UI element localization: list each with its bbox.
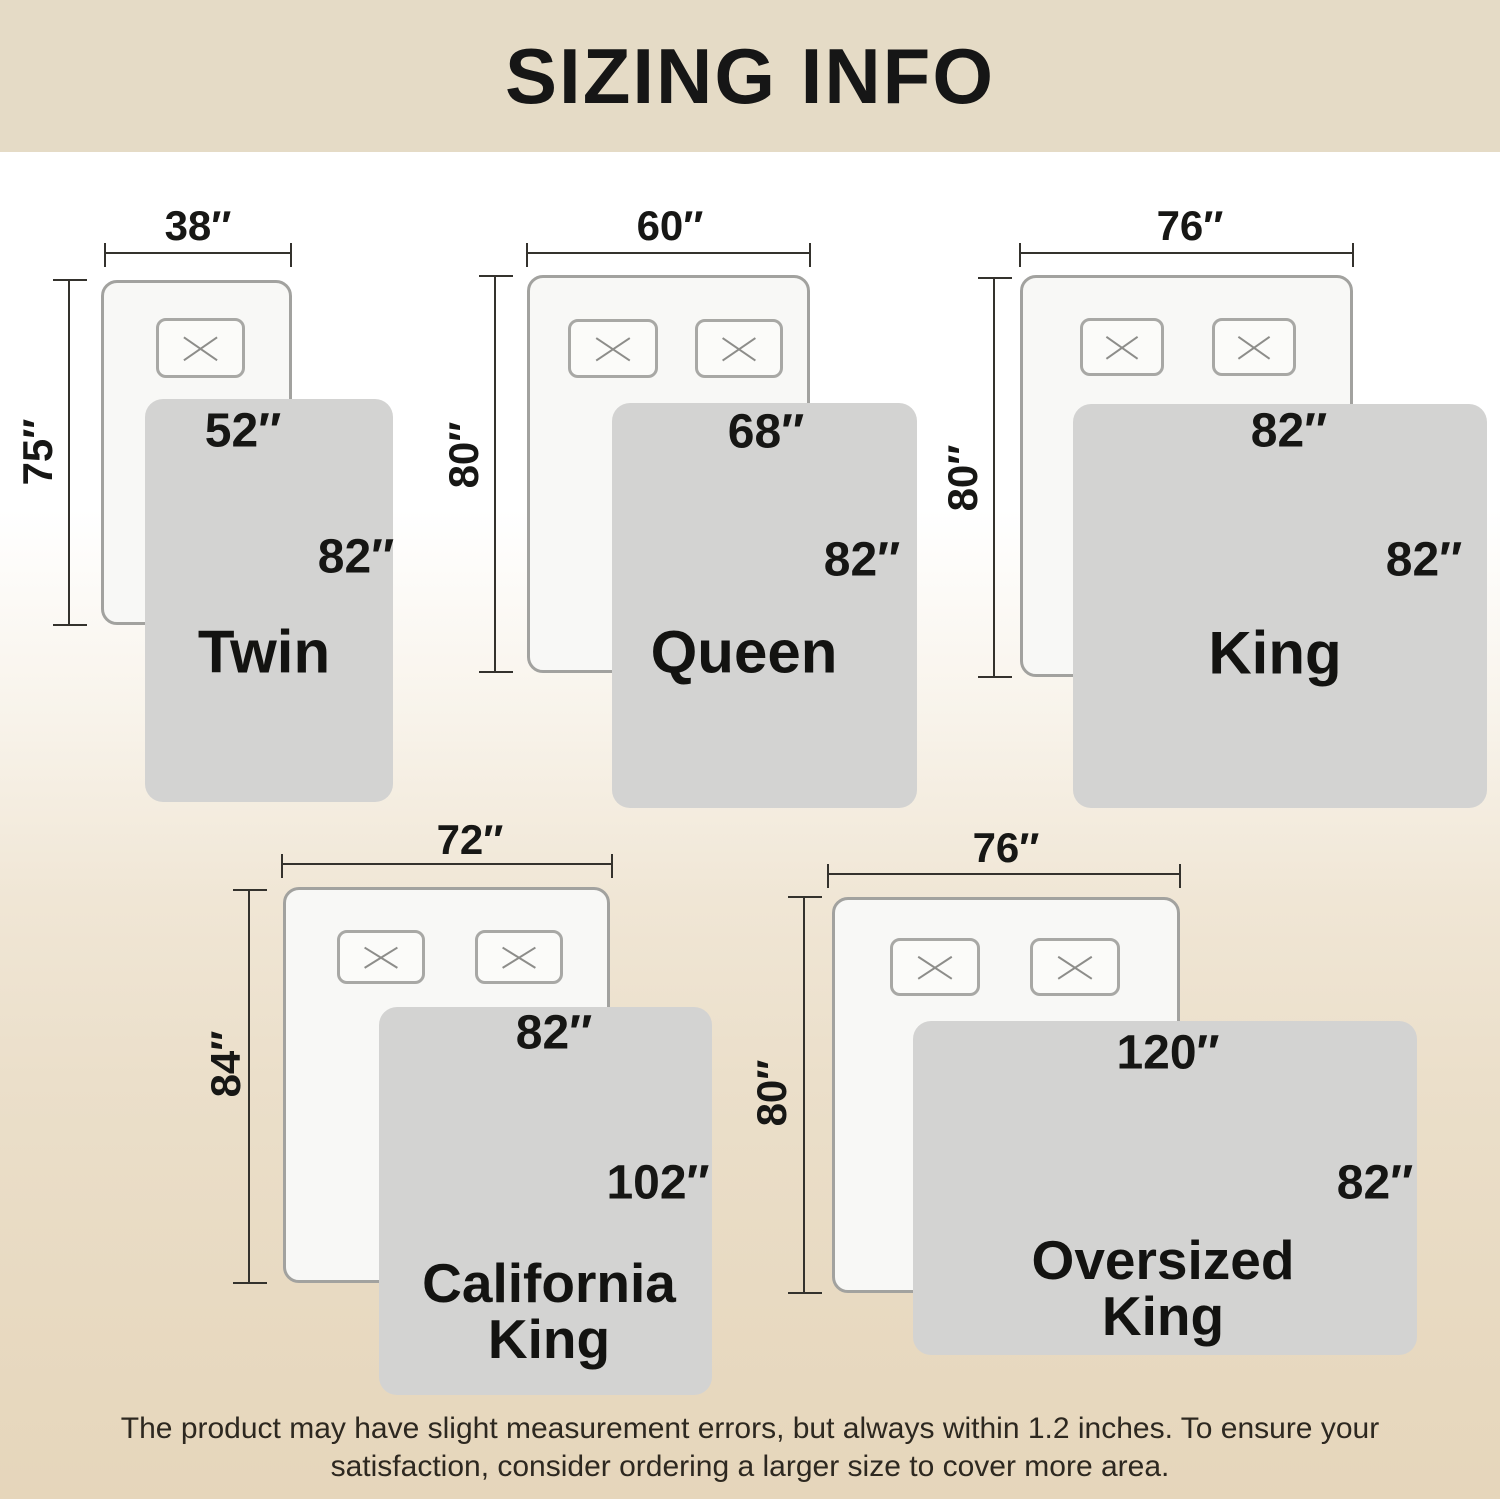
pillow-x-icon: [478, 933, 560, 981]
pillow: [1212, 318, 1296, 376]
bed-width-label: 76″: [973, 824, 1040, 872]
size-name-line: King: [422, 1311, 676, 1367]
pillow: [568, 319, 658, 378]
pillow-x-icon: [698, 322, 780, 375]
blanket-width-label: 82″: [1251, 404, 1327, 459]
size-name-line: Twin: [198, 621, 330, 682]
bed-width-dimension-line: [828, 873, 1180, 875]
bed-outline: [527, 275, 810, 673]
pillow: [475, 930, 563, 984]
bed-length-label: 75″: [14, 419, 62, 486]
bed-width-dimension-line: [282, 863, 612, 865]
pillow-x-icon: [893, 941, 977, 993]
bed-outline: [1020, 275, 1353, 677]
bed-width-dimension-line: [105, 252, 291, 254]
blanket-length-label: 102″: [606, 1156, 709, 1211]
bed-length-dimension-line: [68, 280, 70, 625]
size-name: King: [1208, 622, 1341, 683]
size-name-line: California: [422, 1255, 676, 1311]
blanket: [612, 403, 917, 808]
size-diagram-oversized-king: 76″ 80″ 120″ 82″ OversizedKing: [0, 0, 1500, 1499]
blanket-width-label: 120″: [1116, 1026, 1219, 1081]
size-name-line: King: [1032, 1288, 1295, 1344]
blanket-length-label: 82″: [1337, 1156, 1413, 1211]
pillow-x-icon: [571, 322, 655, 375]
size-name-line: Oversized: [1032, 1232, 1295, 1288]
blanket-length-label: 82″: [824, 533, 900, 588]
blanket-width-label: 52″: [205, 404, 281, 459]
bed-width-dimension-line: [527, 252, 810, 254]
pillows: [0, 0, 1500, 1499]
bed-length-dimension-line: [803, 897, 805, 1293]
pillows: [0, 0, 1500, 1499]
size-name-line: Queen: [651, 621, 838, 682]
bed-outline: [832, 897, 1180, 1293]
bed-length-dimension-line: [248, 890, 250, 1283]
bed-width-label: 60″: [637, 202, 704, 250]
size-name: CaliforniaKing: [422, 1255, 676, 1367]
pillow: [337, 930, 425, 984]
bed-width-dimension-line: [1020, 252, 1353, 254]
header-band: SIZING INFO: [0, 0, 1500, 152]
size-diagram-california-king: 72″ 84″ 82″ 102″ CaliforniaKing: [0, 0, 1500, 1499]
pillow: [890, 938, 980, 996]
pillow-x-icon: [1033, 941, 1117, 993]
footer-note: The product may have slight measurement …: [44, 1410, 1456, 1485]
bed-width-label: 76″: [1157, 202, 1224, 250]
size-name-line: King: [1208, 622, 1341, 683]
bed-length-label: 84″: [202, 1031, 250, 1098]
blanket-width-label: 68″: [728, 405, 804, 460]
blanket: [145, 399, 393, 802]
bed-length-label: 80″: [748, 1060, 796, 1127]
size-diagram-twin: 38″ 75″ 52″ 82″ Twin: [0, 0, 1500, 1499]
blanket-width-label: 82″: [516, 1006, 592, 1061]
pillow: [1080, 318, 1164, 376]
page-title: SIZING INFO: [505, 31, 995, 122]
size-diagram-queen: 60″ 80″ 68″ 82″ Queen: [0, 0, 1500, 1499]
pillows: [0, 0, 1500, 1499]
sizing-infographic: SIZING INFO 38″ 75″ 52″ 82″ Twin 60″ 80″…: [0, 0, 1500, 1499]
bed-width-label: 72″: [437, 816, 504, 864]
pillow-x-icon: [159, 321, 242, 375]
bed-width-label: 38″: [165, 202, 232, 250]
blanket-length-label: 82″: [1386, 533, 1462, 588]
bed-outline: [101, 280, 292, 625]
pillows: [0, 0, 1500, 1499]
pillows: [0, 0, 1500, 1499]
blanket: [379, 1007, 712, 1395]
bed-length-dimension-line: [993, 278, 995, 677]
blanket-length-label: 82″: [318, 530, 394, 585]
bed-length-dimension-line: [494, 276, 496, 672]
pillow-x-icon: [1215, 321, 1293, 373]
blanket: [1073, 404, 1487, 808]
pillow-x-icon: [1083, 321, 1161, 373]
pillow: [695, 319, 783, 378]
bed-outline: [283, 887, 610, 1283]
size-diagram-king: 76″ 80″ 82″ 82″ King: [0, 0, 1500, 1499]
bed-length-label: 80″: [939, 445, 987, 512]
bed-length-label: 80″: [440, 422, 488, 489]
pillow: [1030, 938, 1120, 996]
pillow-x-icon: [340, 933, 422, 981]
blanket: [913, 1021, 1417, 1355]
size-name: Queen: [651, 621, 838, 682]
pillow: [156, 318, 245, 378]
size-name: Twin: [198, 621, 330, 682]
size-name: OversizedKing: [1032, 1232, 1295, 1344]
